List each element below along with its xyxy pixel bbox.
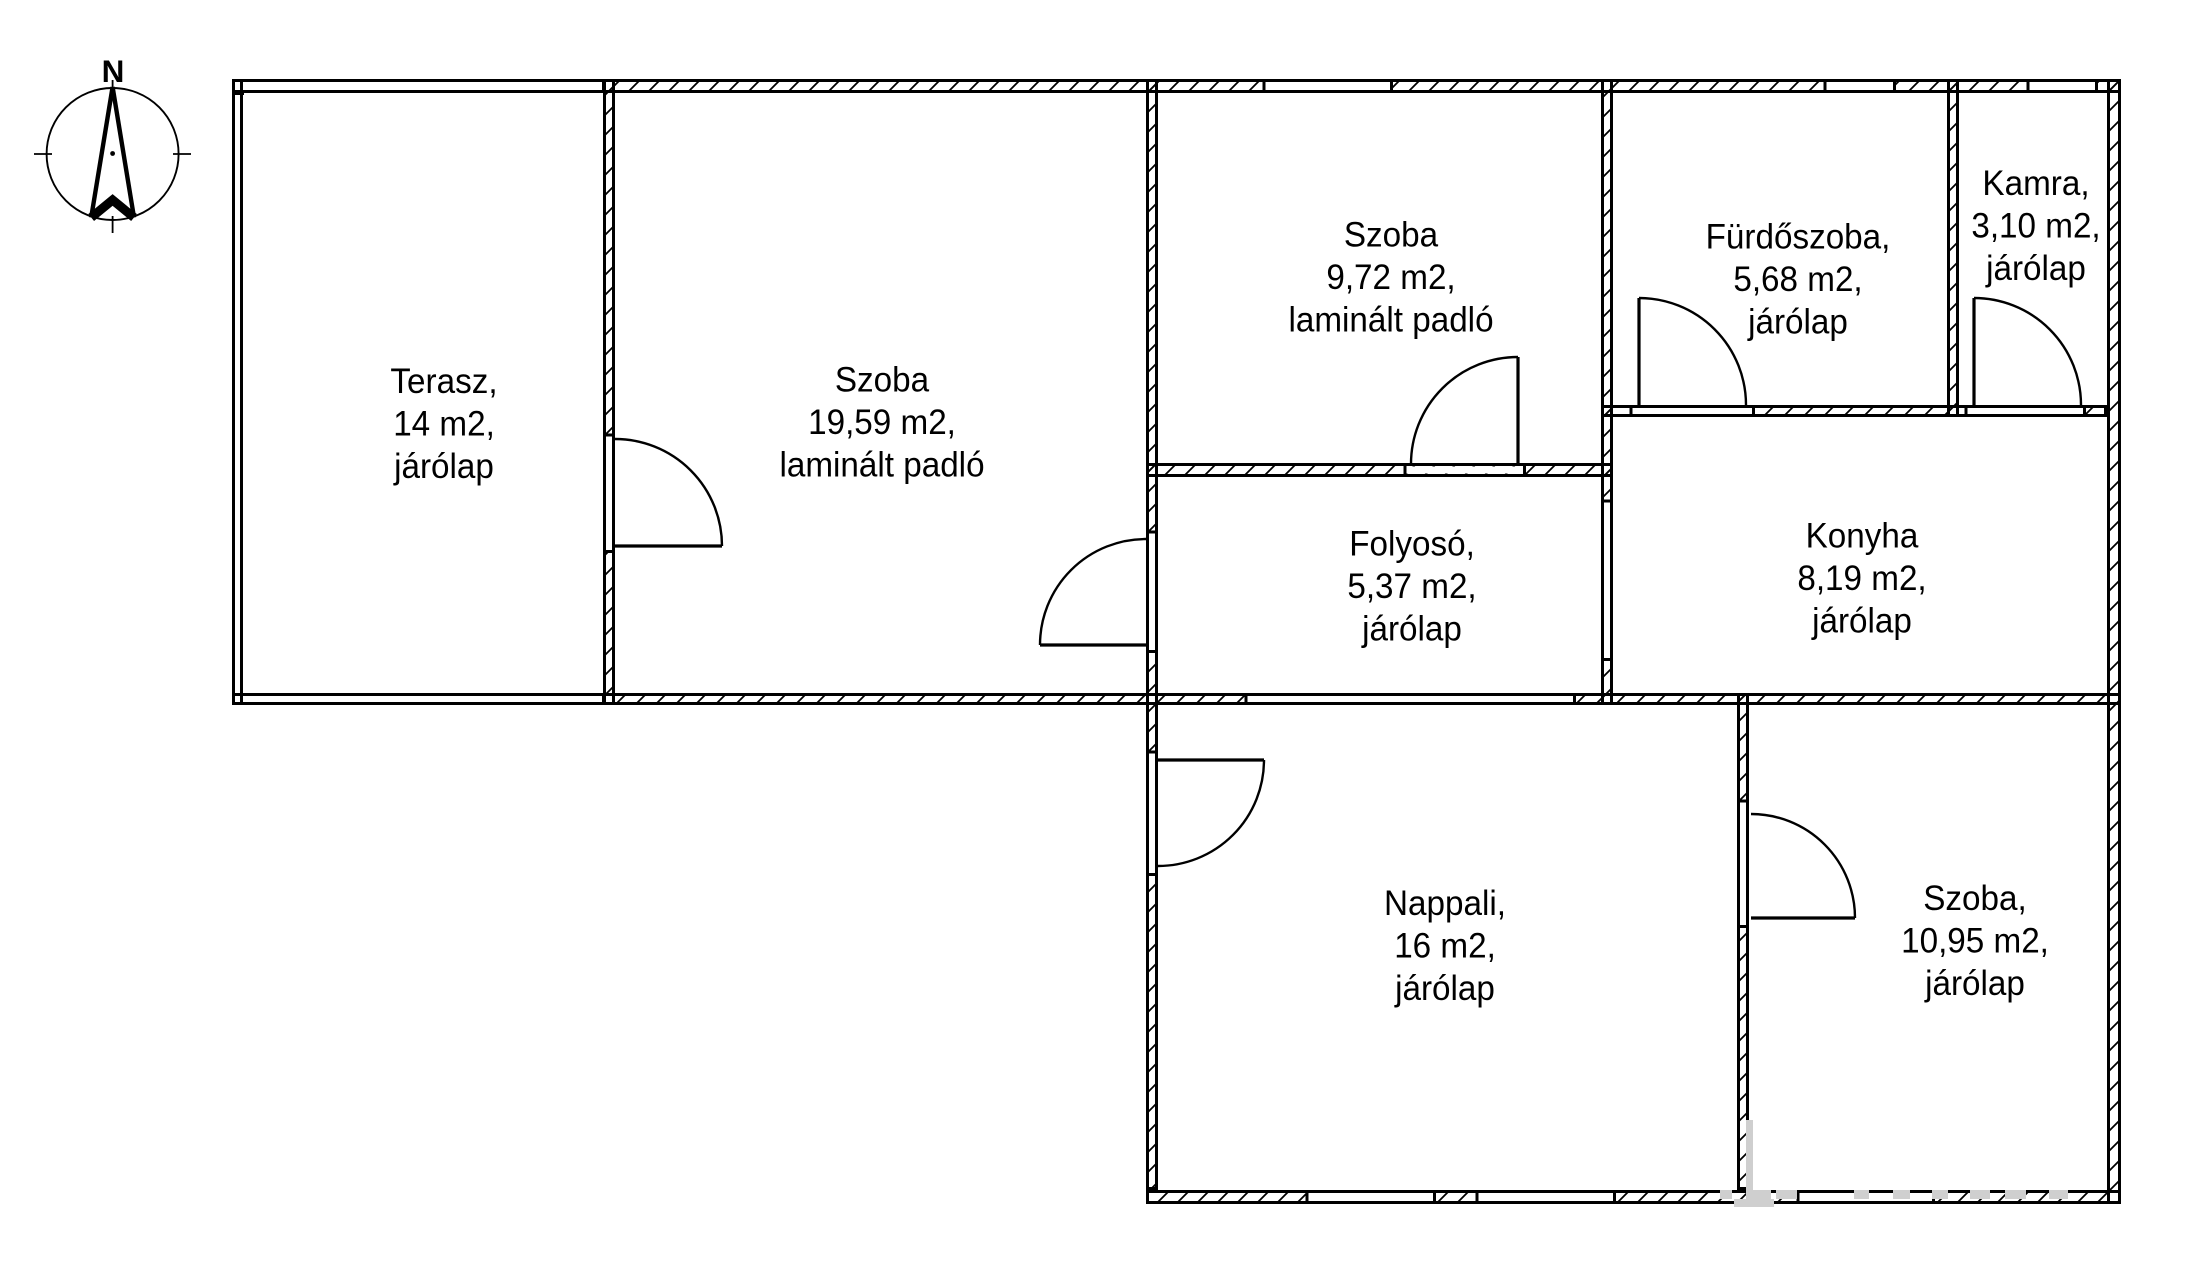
svg-text:Szoba,: Szoba,	[1923, 879, 2026, 918]
svg-text:laminált padló: laminált padló	[779, 446, 984, 485]
svg-text:Fürdőszoba,: Fürdőszoba,	[1706, 218, 1891, 257]
svg-text:3,10 m2,: 3,10 m2,	[1971, 207, 2100, 246]
svg-text:járólap: járólap	[1924, 964, 2025, 1003]
svg-text:laminált padló: laminált padló	[1288, 301, 1493, 340]
svg-text:Szoba: Szoba	[1344, 216, 1438, 255]
svg-text:járólap: járólap	[1394, 969, 1495, 1008]
svg-text:járólap: járólap	[1985, 249, 2086, 288]
svg-text:19,59 m2,: 19,59 m2,	[808, 403, 956, 442]
svg-text:Szoba: Szoba	[835, 361, 929, 400]
svg-text:járólap: járólap	[1811, 602, 1912, 641]
svg-text:Folyosó,: Folyosó,	[1349, 525, 1475, 564]
svg-text:5,68 m2,: 5,68 m2,	[1733, 260, 1862, 299]
svg-text:8,19 m2,: 8,19 m2,	[1797, 559, 1926, 598]
svg-text:14 m2,: 14 m2,	[393, 405, 495, 444]
svg-text:Nappali,: Nappali,	[1384, 884, 1506, 923]
svg-text:járólap: járólap	[393, 447, 494, 486]
svg-text:16 m2,: 16 m2,	[1394, 927, 1496, 966]
svg-text:5,37 m2,: 5,37 m2,	[1347, 567, 1476, 606]
svg-text:9,72 m2,: 9,72 m2,	[1326, 258, 1455, 297]
svg-text:Kamra,: Kamra,	[1982, 164, 2089, 203]
svg-text:N: N	[102, 53, 125, 89]
svg-text:10,95 m2,: 10,95 m2,	[1901, 922, 2049, 961]
svg-text:járólap: járólap	[1747, 303, 1848, 342]
svg-text:járólap: járólap	[1361, 610, 1462, 649]
svg-text:Konyha: Konyha	[1806, 517, 1919, 556]
svg-text:Terasz,: Terasz,	[390, 362, 497, 401]
